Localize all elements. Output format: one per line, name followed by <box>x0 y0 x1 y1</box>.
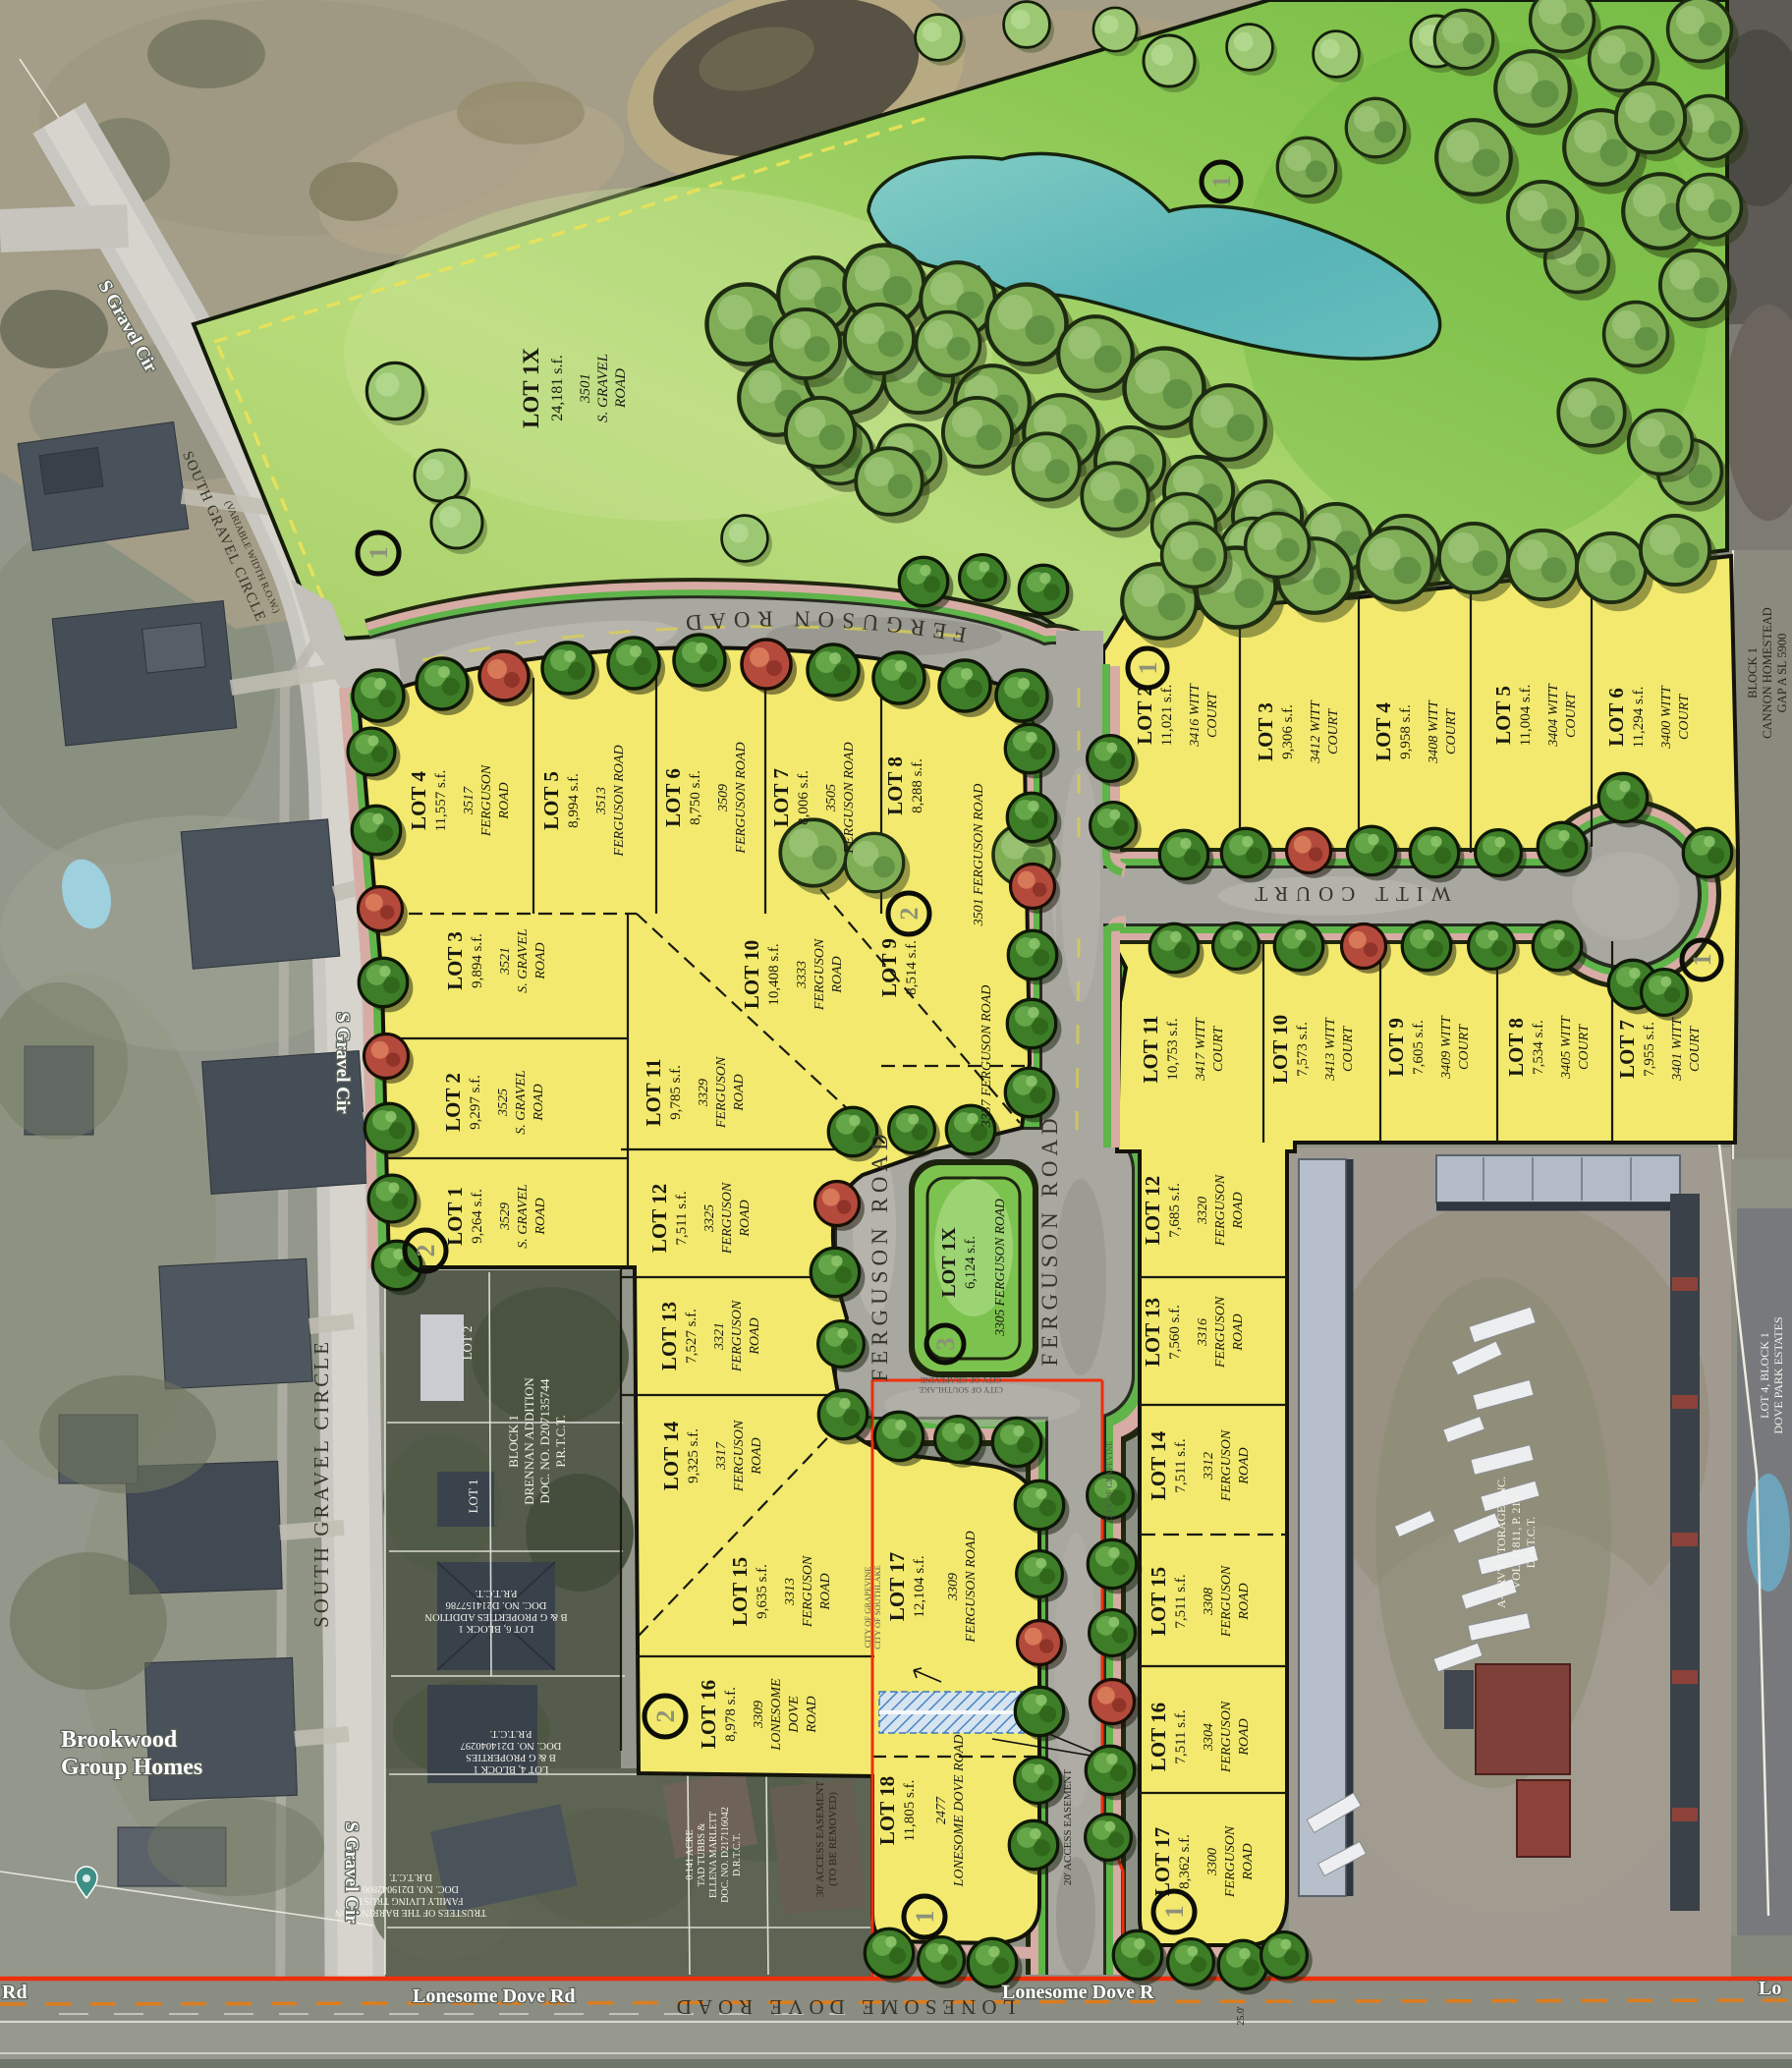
svg-text:3408 WITT: 3408 WITT <box>1427 699 1441 764</box>
svg-text:7,511 s.f.: 7,511 s.f. <box>674 1191 690 1245</box>
svg-text:FERGUSON ROAD: FERGUSON ROAD <box>734 742 749 854</box>
svg-text:7,605 s.f.: 7,605 s.f. <box>1411 1020 1427 1075</box>
svg-text:FERGUSON ROAD: FERGUSON ROAD <box>964 1531 979 1643</box>
svg-text:ROAD: ROAD <box>750 1437 764 1475</box>
svg-text:Rd: Rd <box>2 1982 28 2003</box>
svg-text:B & G PROPERTIES: B & G PROPERTIES <box>466 1752 556 1762</box>
svg-text:FERGUSON: FERGUSON <box>720 1182 735 1255</box>
svg-text:FERGUSON: FERGUSON <box>812 938 827 1011</box>
svg-text:3: 3 <box>931 1338 960 1351</box>
svg-text:COURT: COURT <box>1457 1024 1472 1070</box>
svg-text:D.R.T.C.T.: D.R.T.C.T. <box>389 1872 432 1882</box>
svg-text:9,894 s.f.: 9,894 s.f. <box>470 933 485 988</box>
svg-text:LOT 7: LOT 7 <box>769 768 793 827</box>
svg-text:ROAD: ROAD <box>830 956 845 993</box>
svg-text:P.R.T.C.T.: P.R.T.C.T. <box>475 1588 517 1598</box>
svg-text:FERGUSON ROAD: FERGUSON ROAD <box>868 1129 892 1381</box>
svg-text:9,635 s.f.: 9,635 s.f. <box>755 1564 770 1619</box>
svg-text:A-1 RV'S STORAGE, INC.: A-1 RV'S STORAGE, INC. <box>1494 1477 1508 1608</box>
svg-text:ROAD: ROAD <box>497 782 512 819</box>
svg-text:LONESOME DOVE ROAD: LONESOME DOVE ROAD <box>952 1735 967 1888</box>
svg-text:LONESOME: LONESOME <box>769 1678 784 1752</box>
svg-text:LOT 9: LOT 9 <box>1384 1018 1408 1077</box>
svg-text:COURT: COURT <box>1564 692 1579 738</box>
svg-text:LOT 2: LOT 2 <box>1133 686 1156 745</box>
svg-text:30' ACCESS EASEMENT: 30' ACCESS EASEMENT <box>814 1781 826 1897</box>
svg-text:3312: 3312 <box>1202 1452 1216 1481</box>
svg-text:ROAD: ROAD <box>1237 1718 1252 1756</box>
svg-text:3529: 3529 <box>498 1202 513 1231</box>
svg-text:2477: 2477 <box>934 1796 949 1824</box>
svg-text:3417 WITT: 3417 WITT <box>1194 1017 1208 1082</box>
svg-text:DOVE PARK ESTATES: DOVE PARK ESTATES <box>1771 1316 1785 1433</box>
svg-text:LOT 6: LOT 6 <box>661 768 685 827</box>
svg-text:LOT 4: LOT 4 <box>1372 702 1395 761</box>
svg-text:COURT: COURT <box>1444 708 1459 755</box>
svg-text:20' ACCESS EASEMENT: 20' ACCESS EASEMENT <box>1062 1769 1074 1885</box>
svg-text:LOT 13: LOT 13 <box>657 1302 681 1370</box>
svg-text:3405 WITT: 3405 WITT <box>1559 1015 1574 1080</box>
svg-text:LOT 5: LOT 5 <box>1491 686 1515 745</box>
svg-text:3517: 3517 <box>462 786 476 815</box>
svg-text:LOT 9: LOT 9 <box>877 938 901 997</box>
svg-text:3317: 3317 <box>714 1441 729 1471</box>
svg-text:CITY OF GRAPEVINE: CITY OF GRAPEVINE <box>921 1375 1002 1385</box>
svg-text:11,557 s.f.: 11,557 s.f. <box>433 770 449 832</box>
svg-text:9,785 s.f.: 9,785 s.f. <box>668 1065 684 1120</box>
svg-text:BLOCK 1: BLOCK 1 <box>1746 647 1760 699</box>
svg-text:25.0': 25.0' <box>1236 2006 1247 2026</box>
svg-text:FERGUSON: FERGUSON <box>732 1420 747 1492</box>
svg-text:LOT 16: LOT 16 <box>1147 1703 1170 1771</box>
svg-text:LOT 15: LOT 15 <box>1147 1567 1170 1636</box>
svg-text:3412 WITT: 3412 WITT <box>1309 699 1323 764</box>
svg-text:B & G PROPERTIES ADDITION: B & G PROPERTIES ADDITION <box>424 1611 568 1622</box>
svg-text:LOT 14: LOT 14 <box>1147 1430 1170 1500</box>
svg-text:LOT 15: LOT 15 <box>728 1557 752 1626</box>
svg-text:DOVE: DOVE <box>787 1696 802 1734</box>
svg-text:11,294 s.f.: 11,294 s.f. <box>1631 687 1647 749</box>
svg-text:3413 WITT: 3413 WITT <box>1323 1017 1338 1082</box>
svg-text:LOT 8: LOT 8 <box>1504 1018 1528 1077</box>
svg-text:FERGUSON: FERGUSON <box>1219 1701 1234 1773</box>
svg-text:LOT 2: LOT 2 <box>460 1326 475 1361</box>
svg-text:3404 WITT: 3404 WITT <box>1546 683 1561 748</box>
svg-text:LOT 10: LOT 10 <box>1268 1015 1292 1084</box>
svg-text:S Gravel Cir: S Gravel Cir <box>341 1821 362 1924</box>
svg-text:ROAD: ROAD <box>738 1200 753 1237</box>
svg-text:CITY OF SOUTHLAKE: CITY OF SOUTHLAKE <box>872 1565 882 1649</box>
svg-text:LOT 3: LOT 3 <box>1254 702 1277 761</box>
svg-text:8,514 s.f.: 8,514 s.f. <box>904 940 920 995</box>
svg-text:GAP A SL 5900: GAP A SL 5900 <box>1775 634 1789 713</box>
svg-text:1: 1 <box>1160 1906 1189 1919</box>
svg-text:BLOCK 1: BLOCK 1 <box>506 1415 521 1468</box>
svg-text:LOT 16: LOT 16 <box>697 1680 720 1749</box>
svg-text:LOT 4, BLOCK 1: LOT 4, BLOCK 1 <box>1758 1332 1771 1419</box>
svg-text:ROAD: ROAD <box>1237 1583 1252 1620</box>
svg-text:S. GRAVEL: S. GRAVEL <box>514 1070 529 1135</box>
svg-text:3313: 3313 <box>783 1578 798 1606</box>
svg-text:9,297 s.f.: 9,297 s.f. <box>468 1075 483 1130</box>
svg-text:ELLENA MARLETT: ELLENA MARLETT <box>708 1812 719 1898</box>
svg-text:COURT: COURT <box>1341 1026 1356 1072</box>
svg-text:FERGUSON: FERGUSON <box>730 1300 745 1372</box>
svg-text:ROAD: ROAD <box>613 368 629 409</box>
svg-text:9,306 s.f.: 9,306 s.f. <box>1280 704 1296 759</box>
svg-text:1: 1 <box>364 547 393 560</box>
svg-text:Group Homes: Group Homes <box>61 1755 202 1780</box>
svg-text:LOT 5: LOT 5 <box>539 771 563 830</box>
svg-text:9,958 s.f.: 9,958 s.f. <box>1398 704 1414 759</box>
svg-text:7,527 s.f.: 7,527 s.f. <box>684 1309 700 1364</box>
svg-text:COURT: COURT <box>1211 1026 1226 1072</box>
svg-text:COURT: COURT <box>1677 694 1692 740</box>
svg-text:3513: 3513 <box>594 787 609 815</box>
svg-text:LOT 3: LOT 3 <box>443 931 467 990</box>
svg-text:3325: 3325 <box>702 1204 717 1233</box>
svg-text:ROAD: ROAD <box>533 1198 548 1235</box>
svg-text:ROAD: ROAD <box>748 1317 762 1355</box>
svg-text:ROAD: ROAD <box>1241 1843 1256 1880</box>
svg-text:3309: 3309 <box>752 1701 766 1729</box>
svg-text:11,805 s.f.: 11,805 s.f. <box>902 1780 918 1842</box>
svg-text:LOT 6: LOT 6 <box>1604 688 1628 747</box>
svg-text:LOT 13: LOT 13 <box>1141 1298 1164 1367</box>
svg-text:Brookwood: Brookwood <box>61 1727 178 1753</box>
svg-text:CITY OF SOUTHLAKE: CITY OF SOUTHLAKE <box>919 1385 1003 1395</box>
svg-text:10,753 s.f.: 10,753 s.f. <box>1165 1018 1181 1080</box>
svg-text:3501: 3501 <box>578 373 593 404</box>
svg-text:LOT 2: LOT 2 <box>441 1073 465 1132</box>
svg-text:COURT: COURT <box>1326 708 1341 755</box>
svg-text:1: 1 <box>1207 176 1236 189</box>
svg-text:FAMILY LIVING TRUST: FAMILY LIVING TRUST <box>358 1895 463 1906</box>
svg-text:(TO BE REMOVED): (TO BE REMOVED) <box>827 1792 839 1886</box>
svg-text:ROAD: ROAD <box>532 1084 546 1121</box>
svg-text:7,955 s.f.: 7,955 s.f. <box>1642 1022 1657 1077</box>
svg-text:3320: 3320 <box>1196 1197 1210 1225</box>
svg-text:LOT 14: LOT 14 <box>659 1421 683 1490</box>
svg-text:FERGUSON: FERGUSON <box>1213 1296 1228 1369</box>
svg-text:3521: 3521 <box>498 947 513 976</box>
svg-text:8,994 s.f.: 8,994 s.f. <box>566 773 582 828</box>
svg-text:7,511 s.f.: 7,511 s.f. <box>1173 1438 1189 1492</box>
svg-text:ROAD: ROAD <box>818 1573 833 1610</box>
svg-text:3501 FERGUSON ROAD: 3501 FERGUSON ROAD <box>972 784 986 927</box>
svg-text:FERGUSON ROAD: FERGUSON ROAD <box>1037 1113 1062 1366</box>
svg-text:2: 2 <box>651 1710 680 1723</box>
svg-text:FERGUSON: FERGUSON <box>1219 1565 1234 1638</box>
svg-text:8,978 s.f.: 8,978 s.f. <box>723 1687 739 1742</box>
svg-text:DOC. NO. D214040297: DOC. NO. D214040297 <box>461 1740 562 1751</box>
svg-text:0.141 ACRE: 0.141 ACRE <box>685 1829 696 1879</box>
svg-text:ROAD: ROAD <box>1237 1447 1252 1484</box>
svg-text:3321: 3321 <box>712 1322 727 1351</box>
svg-text:LOT 8: LOT 8 <box>883 756 907 815</box>
svg-text:3525: 3525 <box>496 1089 511 1117</box>
svg-text:FERGUSON: FERGUSON <box>479 764 494 837</box>
svg-text:7,511 s.f.: 7,511 s.f. <box>1173 1574 1189 1628</box>
svg-text:LOT 12: LOT 12 <box>1141 1176 1164 1245</box>
svg-text:8,362 s.f.: 8,362 s.f. <box>1177 1834 1193 1889</box>
svg-text:9,325 s.f.: 9,325 s.f. <box>686 1428 701 1483</box>
svg-text:ROAD: ROAD <box>805 1696 819 1733</box>
svg-text:3316: 3316 <box>1196 1318 1210 1347</box>
svg-text:COURT: COURT <box>1205 692 1220 738</box>
svg-text:1: 1 <box>911 1911 939 1924</box>
svg-text:LOT 18: LOT 18 <box>875 1776 899 1845</box>
svg-text:3333: 3333 <box>795 961 810 989</box>
svg-text:LOT 1: LOT 1 <box>466 1480 480 1514</box>
svg-text:CITY OF GRAPEVINE: CITY OF GRAPEVINE <box>863 1567 872 1649</box>
svg-text:CITY OF GRAPEVINE: CITY OF GRAPEVINE <box>1104 1441 1114 1523</box>
svg-text:3337 FERGUSON ROAD: 3337 FERGUSON ROAD <box>980 985 994 1129</box>
svg-text:FERGUSON ROAD: FERGUSON ROAD <box>612 745 627 857</box>
svg-text:3401 WITT: 3401 WITT <box>1670 1017 1685 1082</box>
svg-text:3300: 3300 <box>1205 1848 1220 1876</box>
svg-text:ROAD: ROAD <box>533 942 548 979</box>
svg-text:3505: 3505 <box>824 784 839 812</box>
svg-text:LOT 6, BLOCK 1: LOT 6, BLOCK 1 <box>459 1623 534 1634</box>
svg-text:S Gravel Cir: S Gravel Cir <box>332 1012 353 1114</box>
svg-text:DOC. NO. D219042806: DOC. NO. D219042806 <box>363 1883 459 1894</box>
svg-text:ROAD: ROAD <box>1231 1313 1246 1351</box>
svg-text:LOT 17: LOT 17 <box>885 1552 909 1621</box>
svg-text:LOT 12: LOT 12 <box>647 1184 671 1253</box>
svg-text:7,560 s.f.: 7,560 s.f. <box>1167 1305 1183 1360</box>
svg-text:Lonesome Dove Rd: Lonesome Dove Rd <box>413 1985 576 2007</box>
svg-text:D.R.T.C.T.: D.R.T.C.T. <box>732 1833 743 1876</box>
svg-text:3309: 3309 <box>946 1573 961 1601</box>
svg-text:CANNON HOMESTEAD: CANNON HOMESTEAD <box>1761 607 1774 739</box>
svg-text:Lonesome Dove R: Lonesome Dove R <box>1002 1982 1154 2003</box>
svg-text:2: 2 <box>895 908 924 921</box>
svg-text:SOUTH GRAVEL CIRCLE: SOUTH GRAVEL CIRCLE <box>309 1339 333 1628</box>
svg-text:8,750 s.f.: 8,750 s.f. <box>688 770 703 825</box>
svg-text:S. GRAVEL: S. GRAVEL <box>516 928 531 993</box>
svg-text:LOT 17: LOT 17 <box>1150 1827 1174 1896</box>
svg-text:COURT: COURT <box>1688 1026 1703 1072</box>
svg-text:3329: 3329 <box>697 1079 711 1107</box>
svg-text:S. GRAVEL: S. GRAVEL <box>516 1184 531 1249</box>
svg-text:FERGUSON: FERGUSON <box>1213 1174 1228 1247</box>
svg-text:S. GRAVEL: S. GRAVEL <box>595 354 611 422</box>
svg-text:VOL. 11811, P. 216: VOL. 11811, P. 216 <box>1509 1495 1523 1589</box>
svg-text:11,004 s.f.: 11,004 s.f. <box>1518 685 1534 747</box>
svg-text:7,511 s.f.: 7,511 s.f. <box>1173 1709 1189 1763</box>
svg-text:WITT COURT: WITT COURT <box>1247 882 1450 906</box>
svg-text:LOT 1X: LOT 1X <box>519 348 543 428</box>
svg-text:Lo: Lo <box>1759 1978 1781 1999</box>
svg-text:LOT 10: LOT 10 <box>740 940 763 1009</box>
svg-text:FERGUSON: FERGUSON <box>1223 1825 1238 1898</box>
svg-text:3400 WITT: 3400 WITT <box>1659 685 1674 750</box>
svg-text:LOT 11: LOT 11 <box>1139 1015 1162 1083</box>
svg-text:ROAD: ROAD <box>732 1074 747 1111</box>
svg-text:FERGUSON ROAD: FERGUSON ROAD <box>842 742 857 854</box>
svg-text:1: 1 <box>1134 662 1162 675</box>
svg-text:COURT: COURT <box>1577 1024 1592 1070</box>
svg-text:3304: 3304 <box>1202 1723 1216 1752</box>
svg-text:LOT 4: LOT 4 <box>407 771 430 830</box>
svg-text:3308: 3308 <box>1202 1588 1216 1616</box>
svg-text:1: 1 <box>1688 954 1716 967</box>
svg-text:11,021 s.f.: 11,021 s.f. <box>1159 685 1175 747</box>
svg-text:D.R.T.C.T.: D.R.T.C.T. <box>1524 1517 1538 1569</box>
svg-text:P.R.T.C.T.: P.R.T.C.T. <box>489 1728 532 1739</box>
svg-text:3416 WITT: 3416 WITT <box>1188 683 1203 748</box>
svg-text:9,264 s.f.: 9,264 s.f. <box>470 1189 485 1244</box>
svg-text:DOC. NO. D217116042: DOC. NO. D217116042 <box>720 1807 731 1902</box>
svg-text:7,685 s.f.: 7,685 s.f. <box>1167 1183 1183 1238</box>
svg-text:DOC. NO. D214157786: DOC. NO. D214157786 <box>446 1599 547 1610</box>
svg-text:LOT 7: LOT 7 <box>1615 1020 1639 1079</box>
svg-text:24,181 s.f.: 24,181 s.f. <box>549 355 566 421</box>
svg-text:3409 WITT: 3409 WITT <box>1439 1015 1454 1080</box>
svg-text:ROAD: ROAD <box>1231 1192 1246 1229</box>
svg-text:LOT 11: LOT 11 <box>642 1058 665 1126</box>
svg-text:FERGUSON: FERGUSON <box>714 1056 729 1129</box>
svg-text:LOT 1X: LOT 1X <box>938 1227 960 1298</box>
svg-text:2: 2 <box>412 1245 440 1258</box>
svg-text:LONESOME DOVE ROAD: LONESOME DOVE ROAD <box>671 1995 1016 2019</box>
svg-text:10,408 s.f.: 10,408 s.f. <box>766 943 782 1005</box>
svg-text:DOC. NO. D207135744: DOC. NO. D207135744 <box>537 1378 552 1504</box>
svg-text:DRENNAN ADDITION: DRENNAN ADDITION <box>522 1377 536 1505</box>
svg-text:8,006 s.f.: 8,006 s.f. <box>796 770 812 825</box>
svg-text:12,104 s.f.: 12,104 s.f. <box>912 1555 927 1617</box>
svg-text:6,124 s.f.: 6,124 s.f. <box>963 1236 979 1289</box>
svg-text:7,534 s.f.: 7,534 s.f. <box>1531 1020 1546 1075</box>
svg-text:FERGUSON: FERGUSON <box>801 1555 815 1628</box>
svg-text:3509: 3509 <box>716 784 731 812</box>
svg-text:LOT 4, BLOCK 1: LOT 4, BLOCK 1 <box>474 1763 549 1774</box>
svg-text:P.R.T.C.T.: P.R.T.C.T. <box>553 1415 568 1467</box>
svg-text:8,288 s.f.: 8,288 s.f. <box>910 758 925 813</box>
svg-text:7,573 s.f.: 7,573 s.f. <box>1295 1022 1311 1077</box>
svg-text:FERGUSON: FERGUSON <box>1219 1429 1234 1502</box>
svg-text:3305 FERGUSON ROAD: 3305 FERGUSON ROAD <box>992 1199 1007 1337</box>
svg-text:LOT 1: LOT 1 <box>443 1187 467 1246</box>
svg-text:TAD TUBBS &: TAD TUBBS & <box>697 1822 707 1886</box>
